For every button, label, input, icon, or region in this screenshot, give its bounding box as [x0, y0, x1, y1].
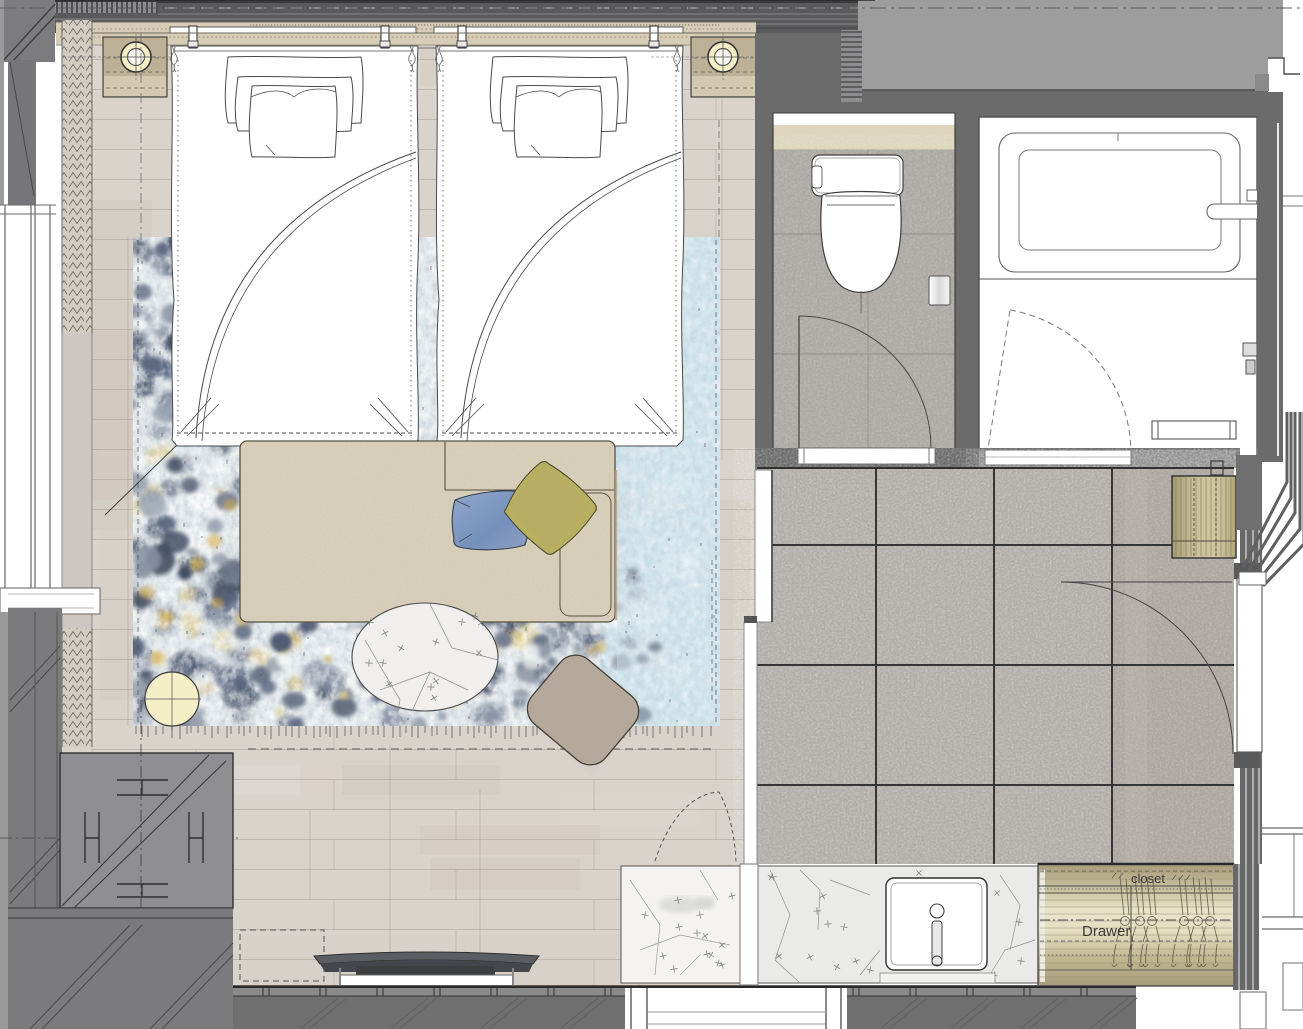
svg-text:closet: closet	[1131, 871, 1165, 886]
svg-text:Drawer: Drawer	[1082, 923, 1130, 940]
